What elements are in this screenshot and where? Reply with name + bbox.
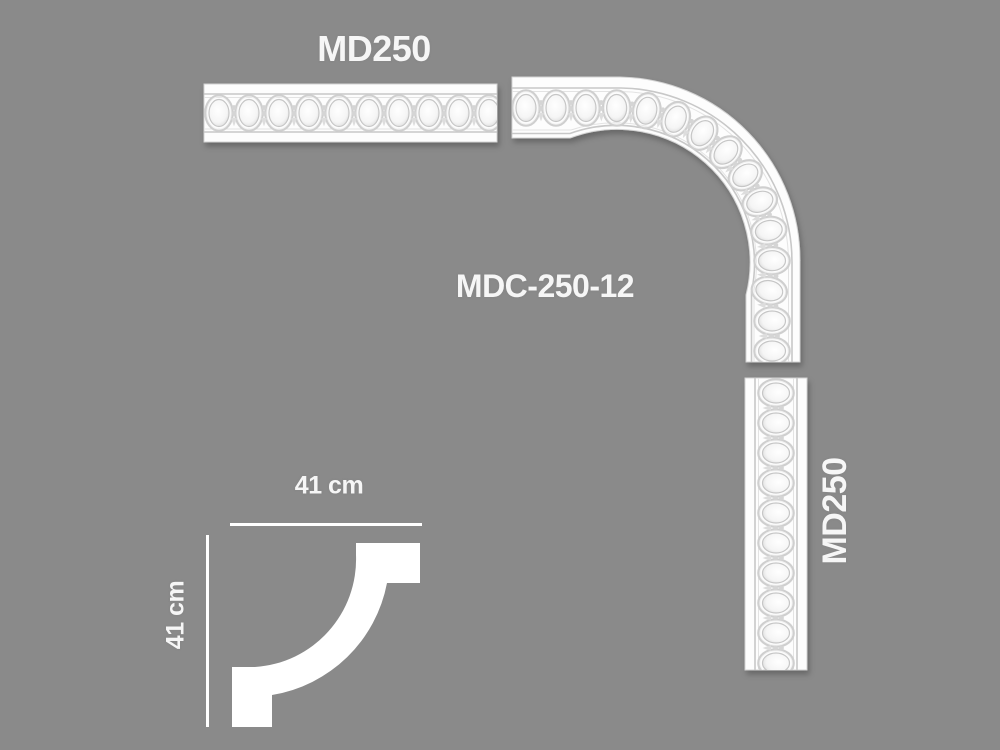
right-strip-image	[745, 378, 807, 677]
top-strip-image	[204, 84, 503, 142]
corner-silhouette	[232, 543, 420, 727]
moulding-artwork	[0, 0, 1000, 750]
height-dimension-label: 41 cm	[164, 581, 189, 649]
right-strip-label: MD250	[818, 457, 852, 564]
corner-piece-image	[512, 77, 800, 365]
height-dimension-line	[206, 535, 209, 727]
width-dimension-label: 41 cm	[295, 474, 363, 499]
top-strip-label: MD250	[317, 31, 431, 67]
corner-label: MDC-250-12	[456, 270, 634, 302]
width-dimension-line	[230, 523, 422, 526]
moulding-product-diagram: MD250 MDC-250-12 MD250 41 cm 41 cm	[0, 0, 1000, 750]
